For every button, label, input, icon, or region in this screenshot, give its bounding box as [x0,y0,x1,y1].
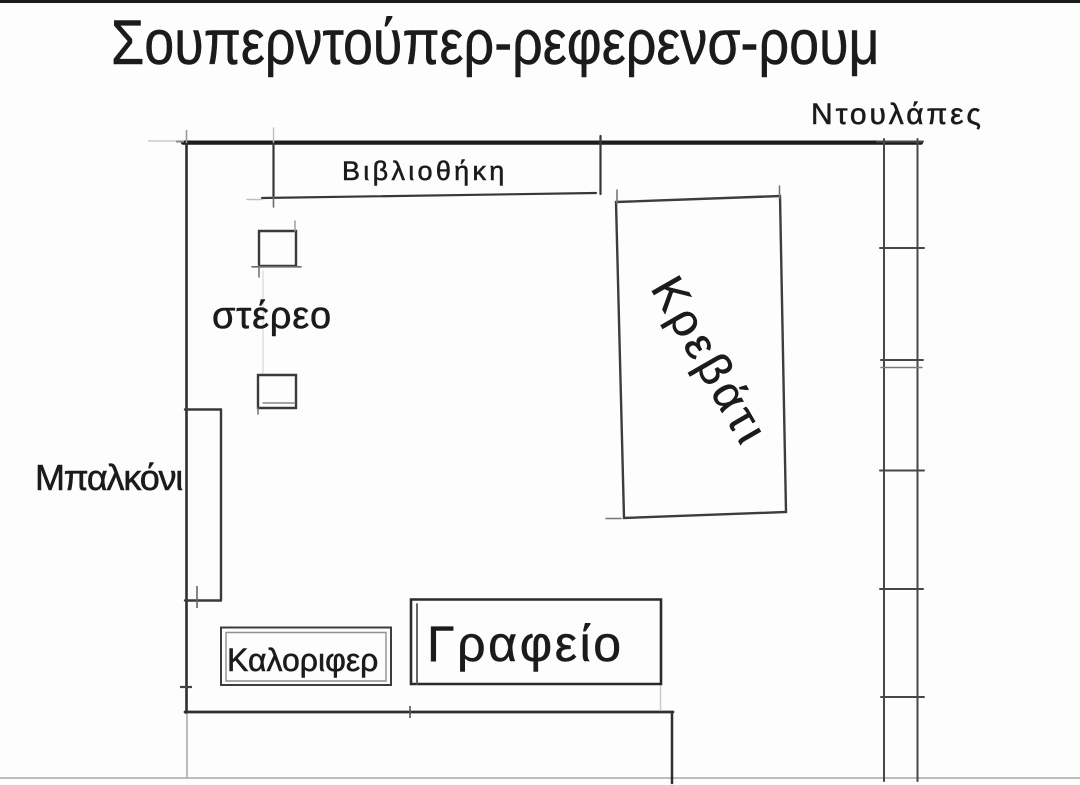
svg-text:Σουπερντούπερ-ρεφερενσ-ρουμ: Σουπερντούπερ-ρεφερενσ-ρουμ [111,8,880,78]
svg-text:Γραφείο: Γραφείο [427,616,624,672]
svg-text:Βιβλιοθήκη: Βιβλιοθήκη [342,156,508,186]
svg-text:Ντουλάπες: Ντουλάπες [811,98,984,131]
svg-text:στέρεο: στέρεο [212,295,332,337]
svg-text:Καλοριφερ: Καλοριφερ [227,642,378,678]
svg-text:Μπαλκόνι: Μπαλκόνι [35,457,182,498]
